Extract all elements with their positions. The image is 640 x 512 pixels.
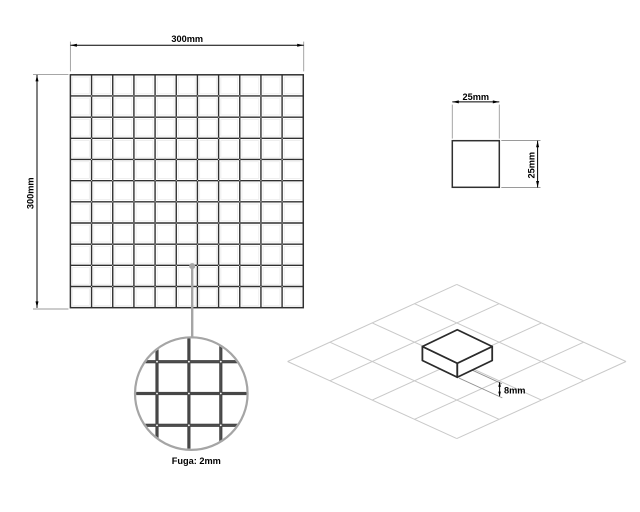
svg-text:300mm: 300mm (25, 177, 35, 209)
svg-text:25mm: 25mm (463, 92, 490, 102)
svg-text:Fuga: 2mm: Fuga: 2mm (172, 456, 221, 466)
svg-text:300mm: 300mm (171, 34, 203, 44)
svg-text:25mm: 25mm (526, 152, 536, 179)
svg-text:8mm: 8mm (504, 386, 525, 396)
